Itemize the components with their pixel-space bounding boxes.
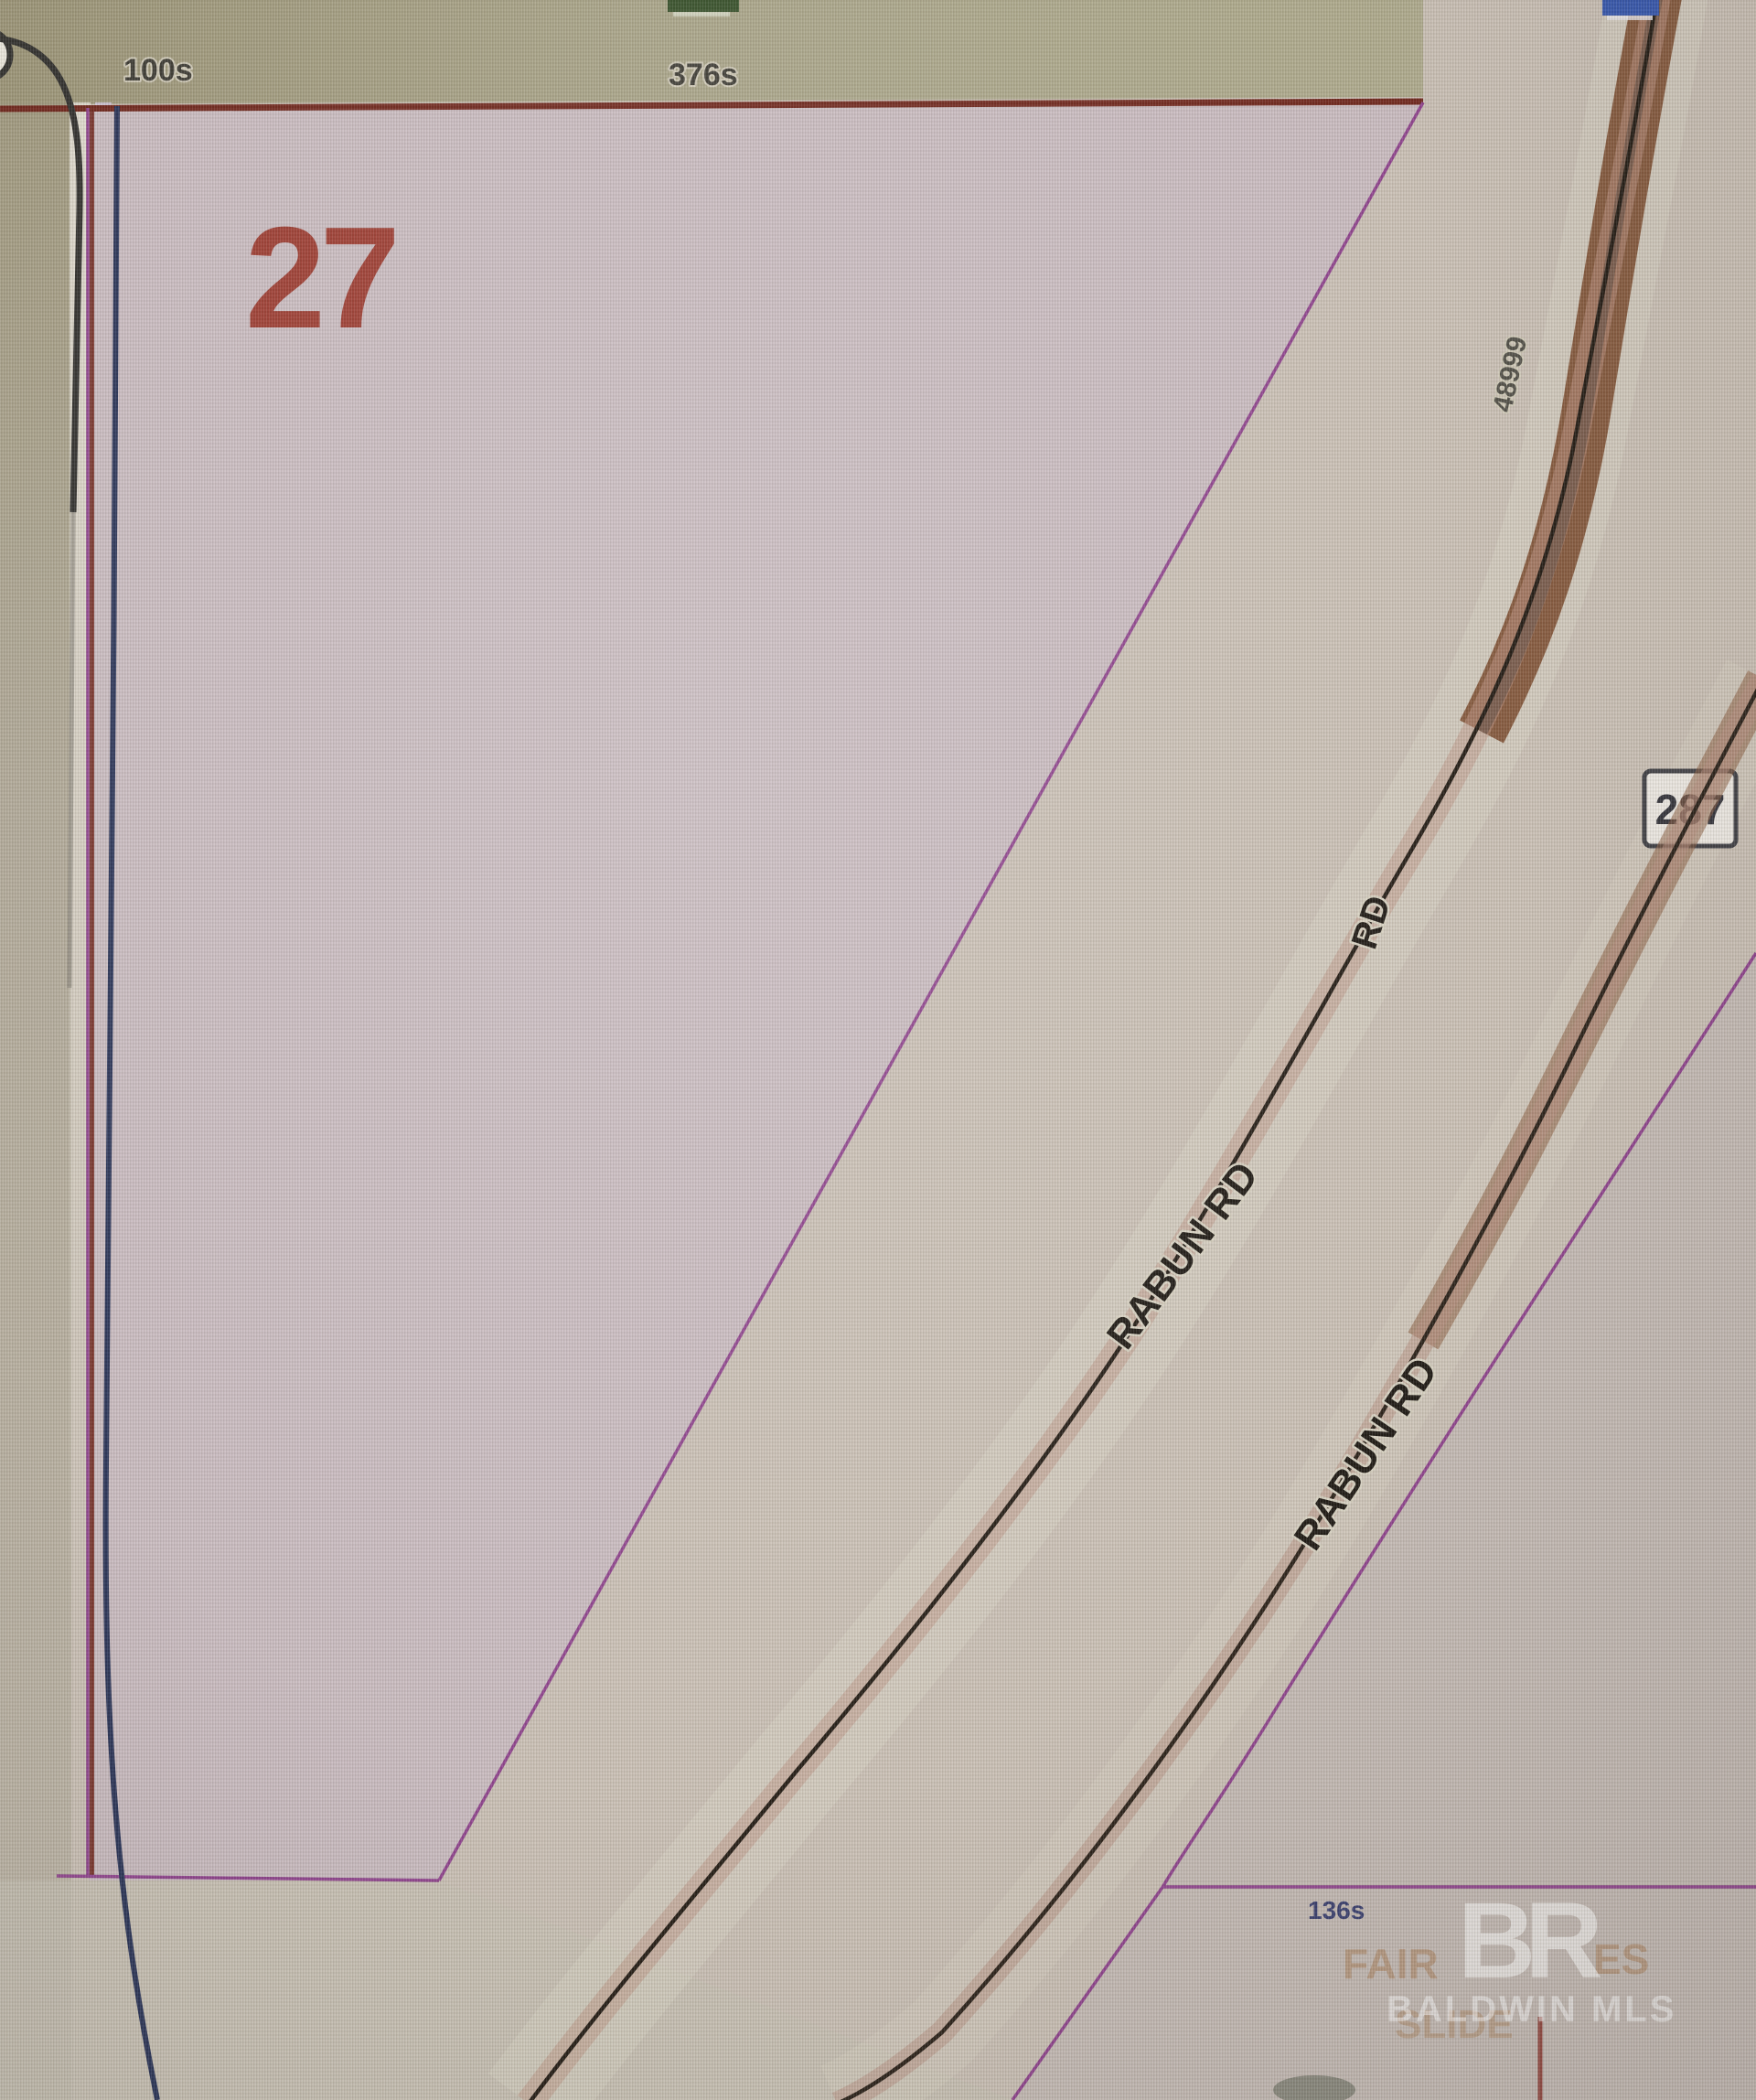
watermark-logo: BR [1458, 1880, 1601, 2001]
plat-text-es: ES [1593, 1935, 1649, 1983]
dimension-label-136s: 136s [1308, 1896, 1365, 1924]
watermark-text: BALDWIN MLS [1387, 1989, 1676, 2030]
plat-map: 287 100s 376s 27 48999 RABUN RD RABUN RD… [0, 0, 1756, 2100]
dimension-label-376s: 376s [669, 58, 738, 92]
dimension-label-100s: 100s [123, 53, 193, 88]
left-corridor [0, 102, 71, 2100]
green-marker-underline [673, 12, 730, 16]
green-marker-top [668, 0, 739, 12]
parcel-number-label: 27 [245, 198, 395, 359]
blue-marker-underline [1607, 16, 1653, 20]
plat-text-fair: FAIR [1343, 1940, 1439, 1987]
map-canvas[interactable]: 287 100s 376s 27 48999 RABUN RD RABUN RD… [0, 0, 1756, 2100]
blue-marker-top-right [1602, 0, 1659, 16]
